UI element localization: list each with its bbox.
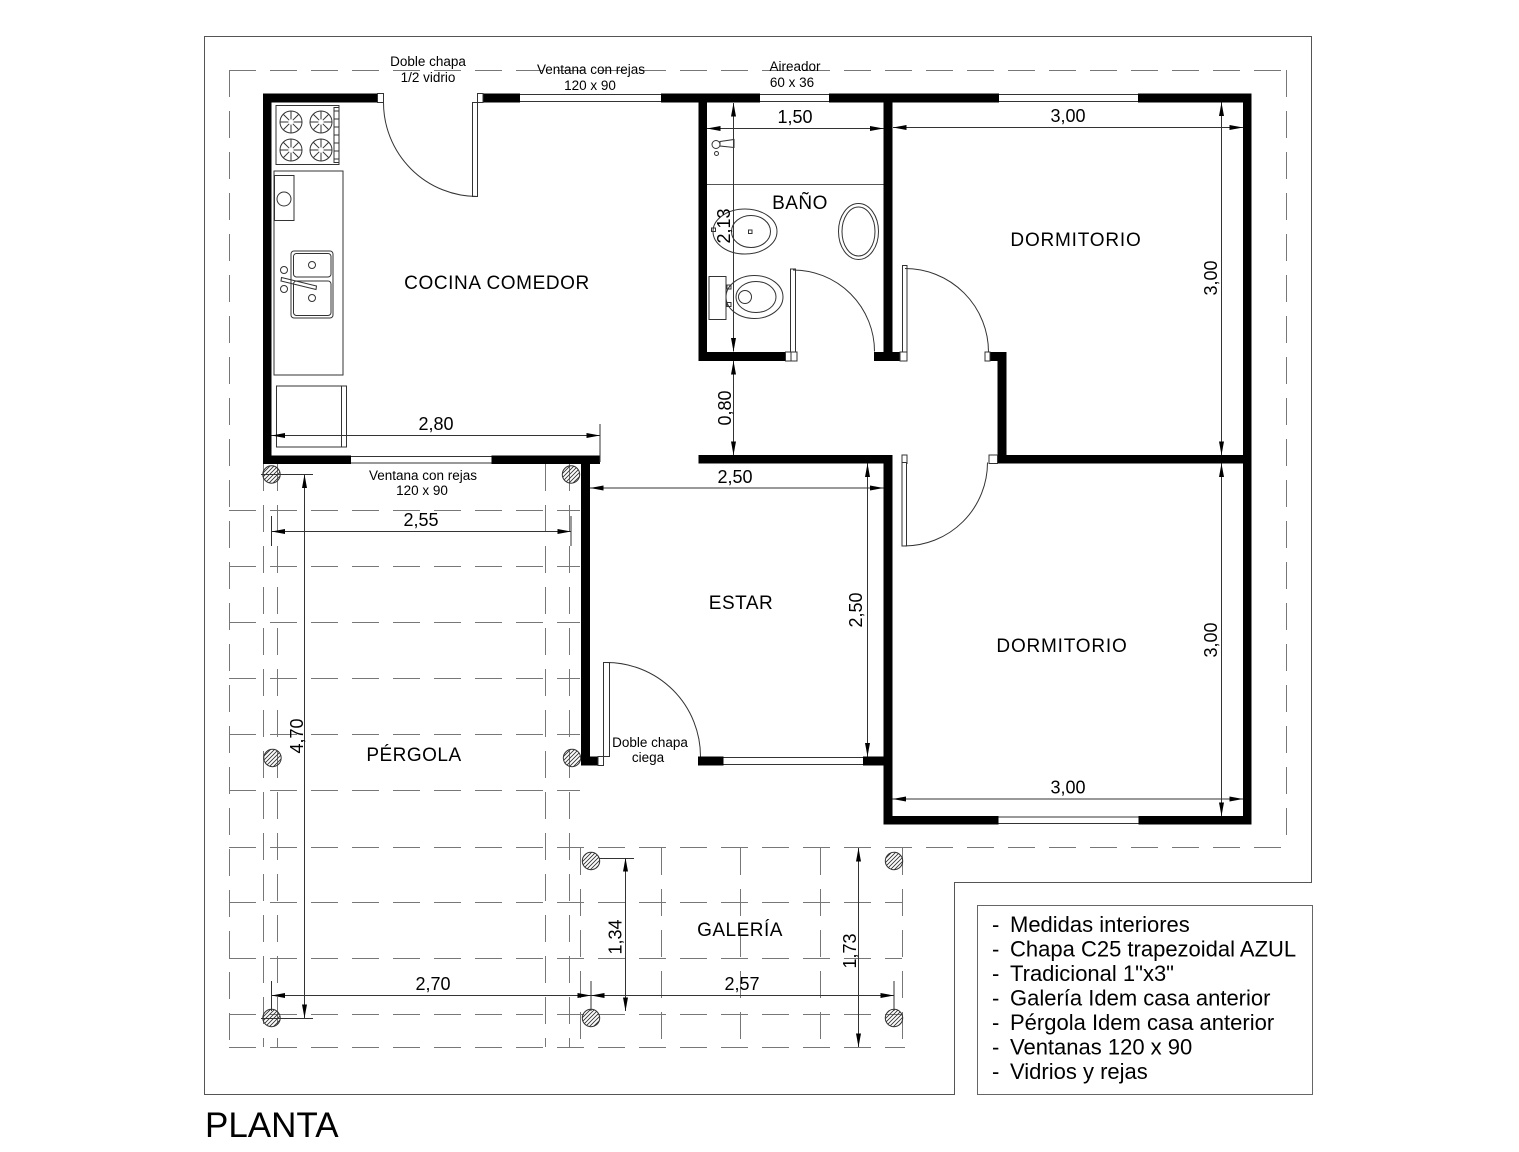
svg-text:2,70: 2,70: [415, 974, 450, 994]
svg-text:ciega: ciega: [632, 750, 665, 765]
svg-text:3,00: 3,00: [1201, 260, 1221, 295]
svg-text:1/2 vidrio: 1/2 vidrio: [401, 70, 456, 85]
svg-text:2,80: 2,80: [418, 414, 453, 434]
svg-text:DORMITORIO: DORMITORIO: [1010, 230, 1141, 251]
svg-text:Ventana con rejas: Ventana con rejas: [369, 468, 477, 483]
svg-text:Doble chapa: Doble chapa: [390, 54, 466, 69]
svg-text:120 x 90: 120 x 90: [396, 483, 448, 498]
svg-text:3,00: 3,00: [1050, 778, 1085, 798]
svg-text:60 x 36: 60 x 36: [770, 75, 814, 90]
svg-text:-Vidrios y rejas: -Vidrios y rejas: [992, 1059, 1148, 1084]
svg-text:PÉRGOLA: PÉRGOLA: [366, 745, 461, 766]
svg-text:-Tradicional 1"x3": -Tradicional 1"x3": [992, 961, 1174, 986]
svg-text:0,80: 0,80: [715, 390, 735, 425]
svg-text:DORMITORIO: DORMITORIO: [996, 636, 1127, 657]
svg-text:Doble chapa: Doble chapa: [612, 735, 688, 750]
svg-text:PLANTA: PLANTA: [205, 1106, 339, 1145]
svg-text:3,00: 3,00: [1201, 622, 1221, 657]
svg-text:COCINA COMEDOR: COCINA COMEDOR: [404, 273, 590, 294]
svg-text:1,50: 1,50: [777, 107, 812, 127]
svg-text:BAÑO: BAÑO: [772, 192, 828, 214]
svg-text:4,70: 4,70: [287, 718, 307, 753]
svg-text:-Ventanas 120 x 90: -Ventanas 120 x 90: [992, 1035, 1192, 1060]
svg-text:-Chapa C25 trapezoidal AZUL: -Chapa C25 trapezoidal AZUL: [992, 937, 1296, 962]
svg-text:2,50: 2,50: [846, 592, 866, 627]
svg-text:GALERÍA: GALERÍA: [697, 920, 783, 941]
svg-text:ESTAR: ESTAR: [709, 593, 773, 614]
svg-text:2,57: 2,57: [724, 974, 759, 994]
svg-text:2,50: 2,50: [717, 467, 752, 487]
svg-text:120 x 90: 120 x 90: [564, 78, 616, 93]
svg-text:3,00: 3,00: [1050, 106, 1085, 126]
svg-text:2,13: 2,13: [714, 208, 734, 243]
svg-text:2,55: 2,55: [403, 510, 438, 530]
svg-text:1,34: 1,34: [606, 919, 626, 954]
svg-text:Ventana con rejas: Ventana con rejas: [537, 62, 645, 77]
svg-text:1,73: 1,73: [840, 933, 860, 968]
svg-text:Aireador: Aireador: [769, 59, 821, 74]
svg-text:-Galería Idem casa anterior: -Galería Idem casa anterior: [992, 986, 1270, 1011]
svg-text:-Medidas interiores: -Medidas interiores: [992, 912, 1190, 937]
svg-text:-Pérgola Idem casa anterior: -Pérgola Idem casa anterior: [992, 1010, 1274, 1035]
